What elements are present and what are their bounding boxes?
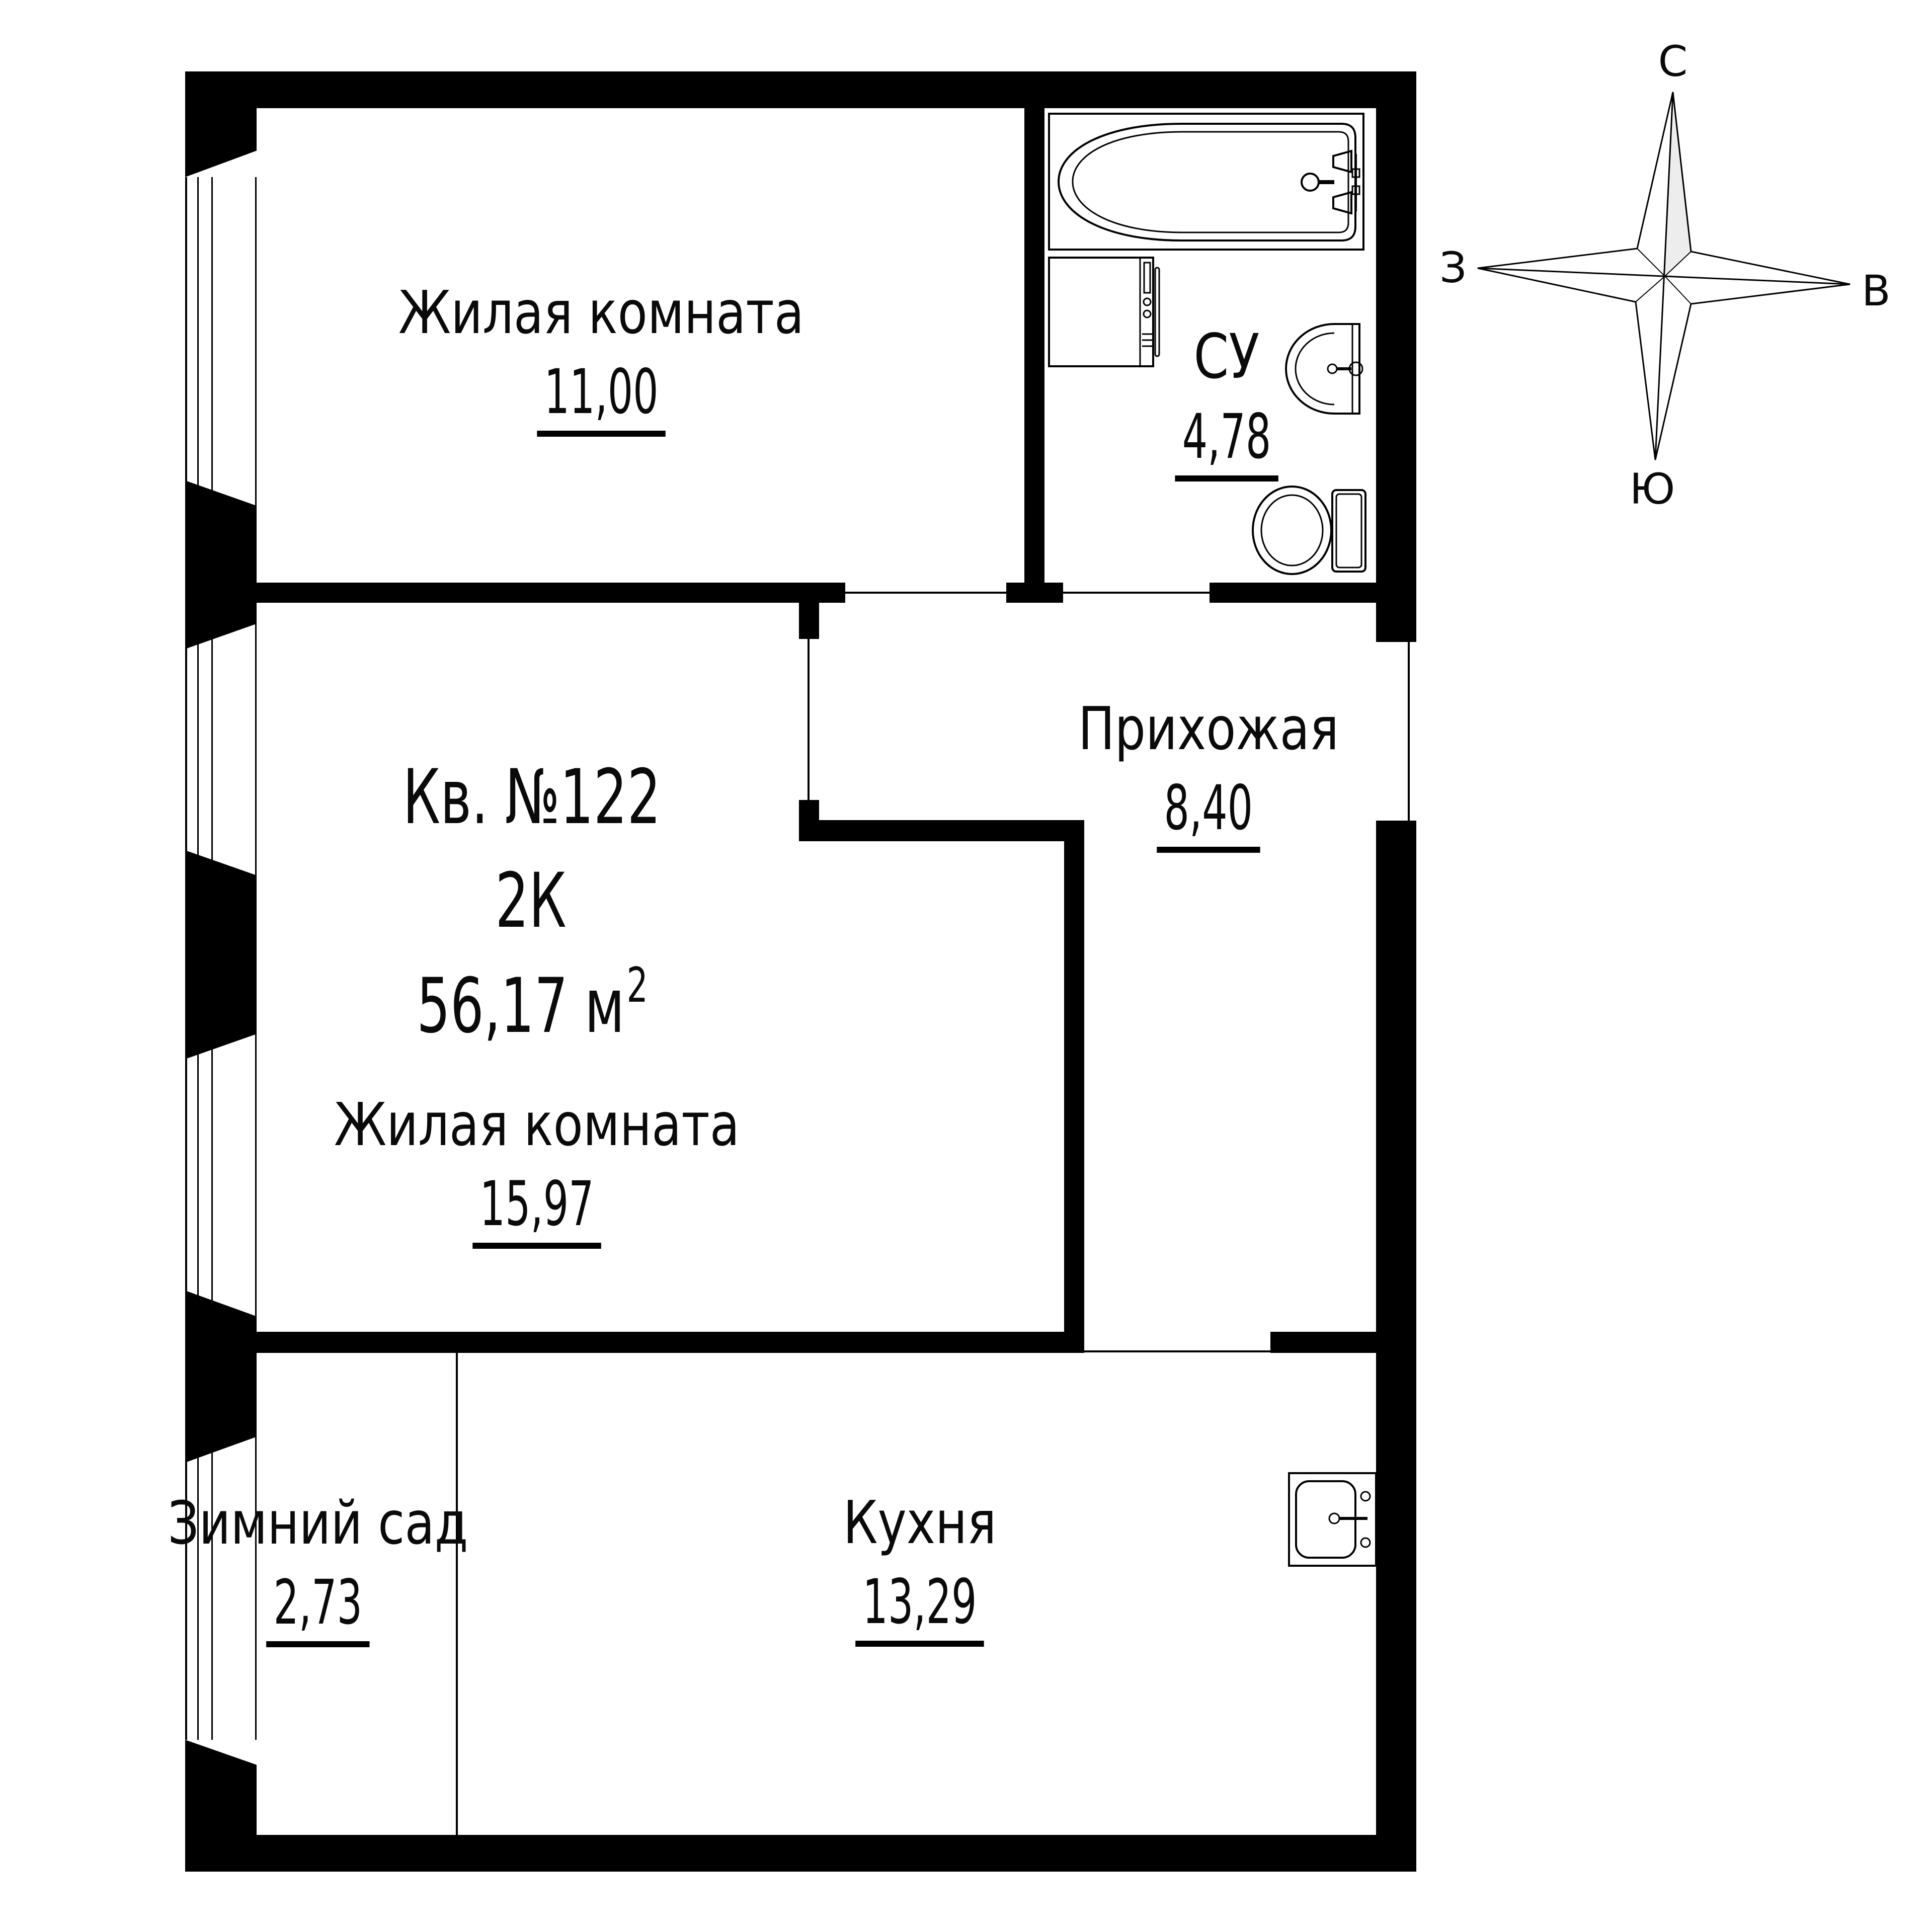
- apartment-type: 2К: [480, 863, 582, 939]
- room-label-bathroom: СУ 4,78: [1147, 327, 1306, 481]
- bathtub-icon: [1049, 114, 1363, 250]
- apartment-area: 56,17 м2: [367, 969, 698, 1054]
- toilet-icon: [1253, 487, 1365, 574]
- floor-plan: Кв. №122 2К 56,17 м2 Жилая комната 11,00…: [0, 0, 1932, 1932]
- compass-rose-icon: [1478, 92, 1850, 460]
- room-area-living1: 11,00: [537, 361, 666, 437]
- compass-west-label: З: [1439, 247, 1467, 289]
- compass-north-label: С: [1658, 40, 1688, 83]
- apartment-number: Кв. №122: [348, 760, 716, 835]
- room-label-living2: Жилая комната 15,97: [289, 1095, 784, 1249]
- room-label-kitchen: Кухня 13,29: [821, 1493, 1018, 1647]
- area-superscript: 2: [627, 958, 648, 1013]
- room-area-kitchen: 13,29: [855, 1571, 984, 1647]
- room-label-living1: Жилая комната 11,00: [354, 283, 848, 437]
- room-label-winter-garden: Зимний сад 2,73: [135, 1493, 501, 1647]
- kitchen-sink-icon: [1289, 1473, 1376, 1566]
- compass-east-label: В: [1862, 270, 1891, 312]
- compass-south-label: Ю: [1630, 468, 1675, 510]
- room-area-bathroom: 4,78: [1175, 406, 1278, 481]
- room-area-winter-garden: 2,73: [266, 1572, 369, 1647]
- room-area-hallway: 8,40: [1157, 777, 1260, 853]
- room-label-hallway: Прихожая 8,40: [1050, 699, 1367, 853]
- washing-machine-icon: [1049, 258, 1159, 366]
- room-area-living2: 15,97: [472, 1173, 601, 1249]
